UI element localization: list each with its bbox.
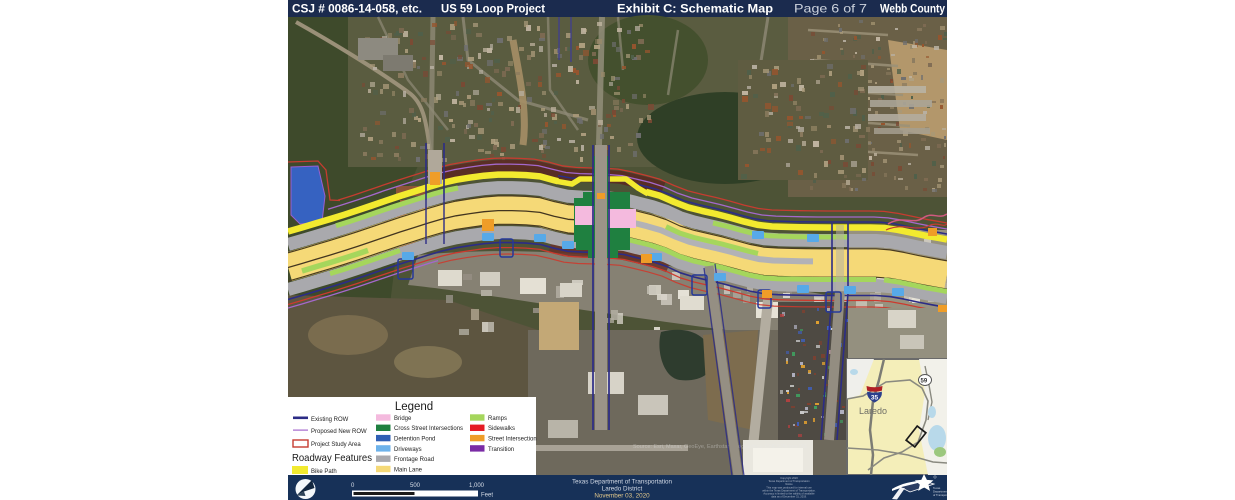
svg-text:Transition: Transition bbox=[488, 447, 514, 453]
svg-text:Bridge: Bridge bbox=[394, 416, 412, 422]
svg-text:November 03, 2020: November 03, 2020 bbox=[594, 493, 650, 500]
svg-text:Exhibit C: Schematic Map: Exhibit C: Schematic Map bbox=[617, 2, 773, 16]
svg-text:Driveways: Driveways bbox=[394, 447, 422, 453]
svg-text:Detention Pond: Detention Pond bbox=[394, 437, 435, 443]
svg-text:Source: Esri, Maxar, GeoEye, E: Source: Esri, Maxar, GeoEye, Earthstar G… bbox=[633, 444, 807, 450]
svg-text:US 59 Loop Project: US 59 Loop Project bbox=[441, 2, 545, 16]
svg-text:Webb County: Webb County bbox=[880, 2, 945, 16]
svg-text:of Transportation: of Transportation bbox=[933, 493, 947, 497]
svg-text:Laredo District: Laredo District bbox=[602, 486, 643, 493]
svg-text:Project Study Area: Project Study Area bbox=[311, 442, 361, 448]
svg-text:35: 35 bbox=[871, 395, 879, 402]
svg-text:Laredo: Laredo bbox=[859, 406, 887, 416]
svg-text:Frontage Road: Frontage Road bbox=[394, 457, 434, 463]
svg-text:Legend: Legend bbox=[395, 401, 433, 413]
svg-text:Main Lane: Main Lane bbox=[394, 467, 423, 473]
svg-text:CSJ # 0086-14-058, etc.: CSJ # 0086-14-058, etc. bbox=[292, 2, 422, 16]
svg-text:Proposed New ROW: Proposed New ROW bbox=[311, 429, 367, 435]
svg-text:Street Intersection: Street Intersection bbox=[488, 437, 537, 443]
svg-text:Existing ROW: Existing ROW bbox=[311, 417, 349, 423]
svg-text:1,000: 1,000 bbox=[469, 483, 485, 489]
svg-text:Sidewalks: Sidewalks bbox=[488, 426, 515, 432]
svg-text:500: 500 bbox=[410, 483, 421, 489]
svg-text:Roadway Features: Roadway Features bbox=[292, 452, 372, 464]
svg-text:Cross Street Intersections: Cross Street Intersections bbox=[394, 426, 463, 432]
svg-text:Texas Department of Transporta: Texas Department of Transportation bbox=[572, 479, 673, 486]
svg-text:Bike Path: Bike Path bbox=[311, 469, 337, 475]
svg-text:Ramps: Ramps bbox=[488, 416, 507, 422]
svg-text:Feet: Feet bbox=[481, 493, 493, 499]
svg-text:59: 59 bbox=[921, 379, 928, 385]
svg-text:data as of December 31, 2019.: data as of December 31, 2019. bbox=[771, 495, 807, 499]
svg-text:Page 6 of 7: Page 6 of 7 bbox=[794, 2, 867, 16]
